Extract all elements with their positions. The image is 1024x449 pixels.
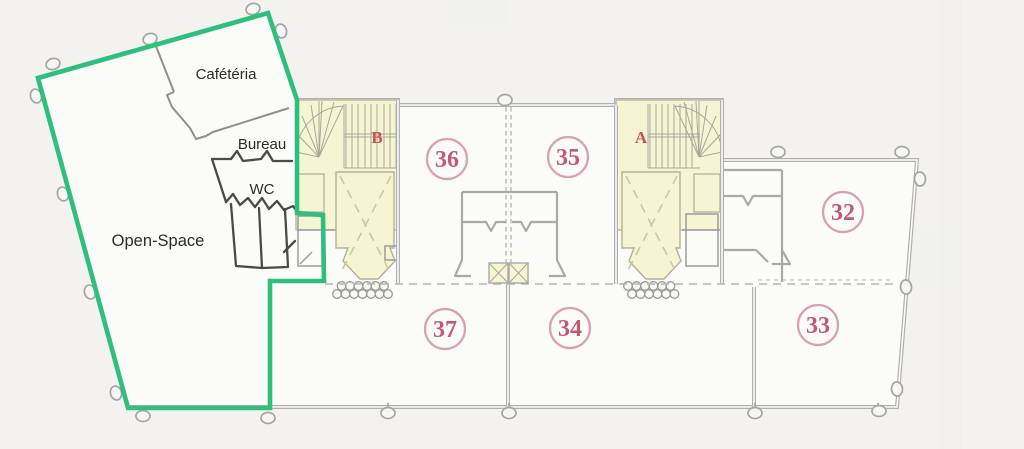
duct-box-icon [489,263,528,283]
room-label-open-space: Open-Space [112,232,205,250]
zone-number-33: 33 [806,313,830,339]
elevator-shaft-b [336,172,399,279]
room-label-cafeteria: Cafétéria [196,66,258,83]
zone-number-37: 37 [433,317,457,343]
zone-number-35: 35 [556,145,580,171]
zone-number-34: 34 [558,316,582,342]
floor-plan-page: B A [0,0,1024,449]
stair-b-closet [298,174,324,212]
building-outline [38,13,917,407]
stair-a-closet [694,174,720,212]
floor-plan-drawing: B A [0,0,1024,449]
zone-number-32: 32 [831,200,855,226]
stairwell-a-label: A [635,128,648,147]
elevator-shaft-a [622,172,681,279]
stairwell-b-label: B [371,128,382,147]
room-label-wc: WC [250,181,275,198]
room-label-bureau: Bureau [238,136,286,153]
straight-stair-a-icon [648,104,700,168]
zone-number-36: 36 [435,147,459,173]
